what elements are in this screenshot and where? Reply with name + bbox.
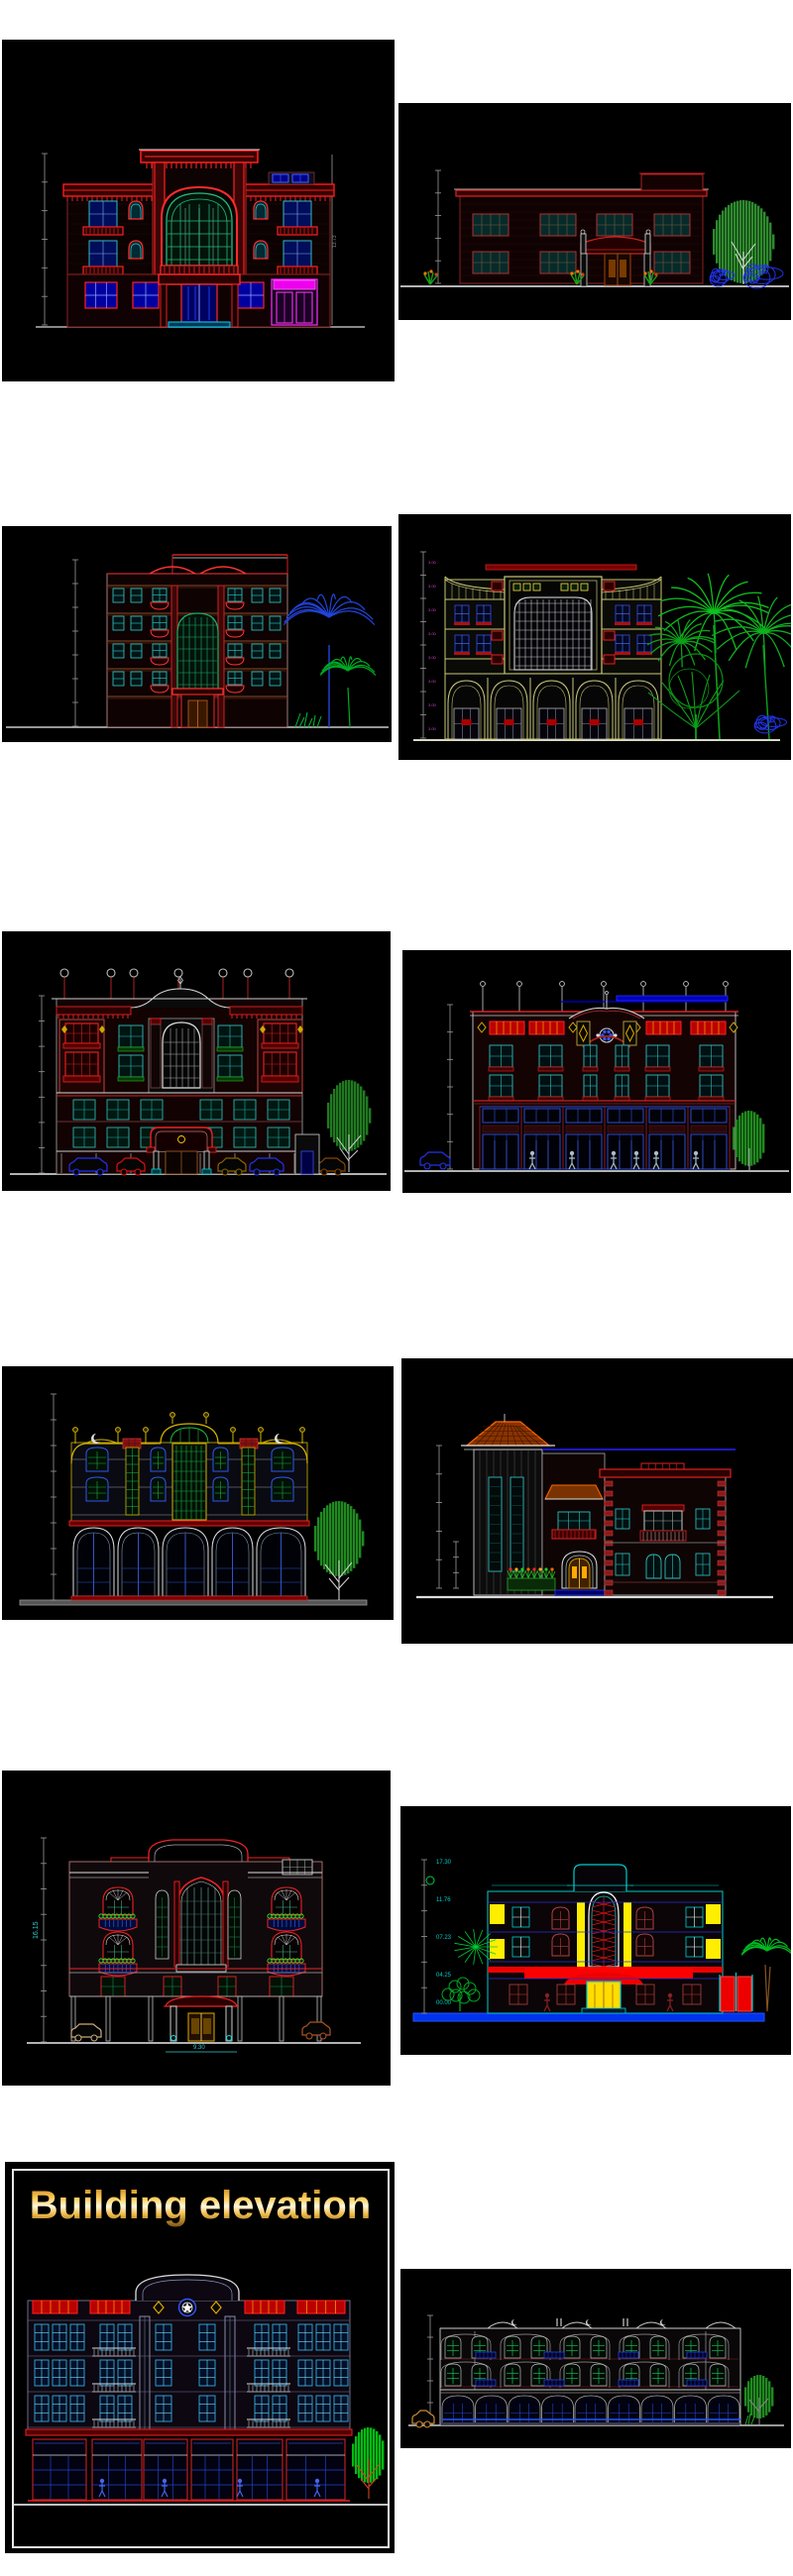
svg-text:13.73: 13.73 — [332, 235, 338, 248]
svg-text:07.23: 07.23 — [436, 1935, 452, 1941]
svg-text:00.00: 00.00 — [436, 2000, 452, 2006]
svg-text:3.00: 3.00 — [428, 584, 437, 589]
svg-text:16.15: 16.15 — [33, 1921, 40, 1939]
svg-text:11.76: 11.76 — [436, 1897, 451, 1903]
svg-text:17.30: 17.30 — [436, 1860, 452, 1866]
svg-text:3.00: 3.00 — [428, 607, 437, 612]
svg-text:Building elevation: Building elevation — [30, 2184, 371, 2227]
svg-text:3.00: 3.00 — [428, 679, 437, 684]
svg-text:3.00: 3.00 — [428, 560, 437, 565]
svg-text:9.30: 9.30 — [193, 2045, 205, 2051]
svg-text:04.25: 04.25 — [436, 1973, 452, 1979]
svg-text:3.00: 3.00 — [428, 631, 437, 636]
svg-text:3.00: 3.00 — [428, 702, 437, 707]
svg-text:3.00: 3.00 — [428, 726, 437, 731]
svg-text:3.00: 3.00 — [428, 655, 437, 660]
